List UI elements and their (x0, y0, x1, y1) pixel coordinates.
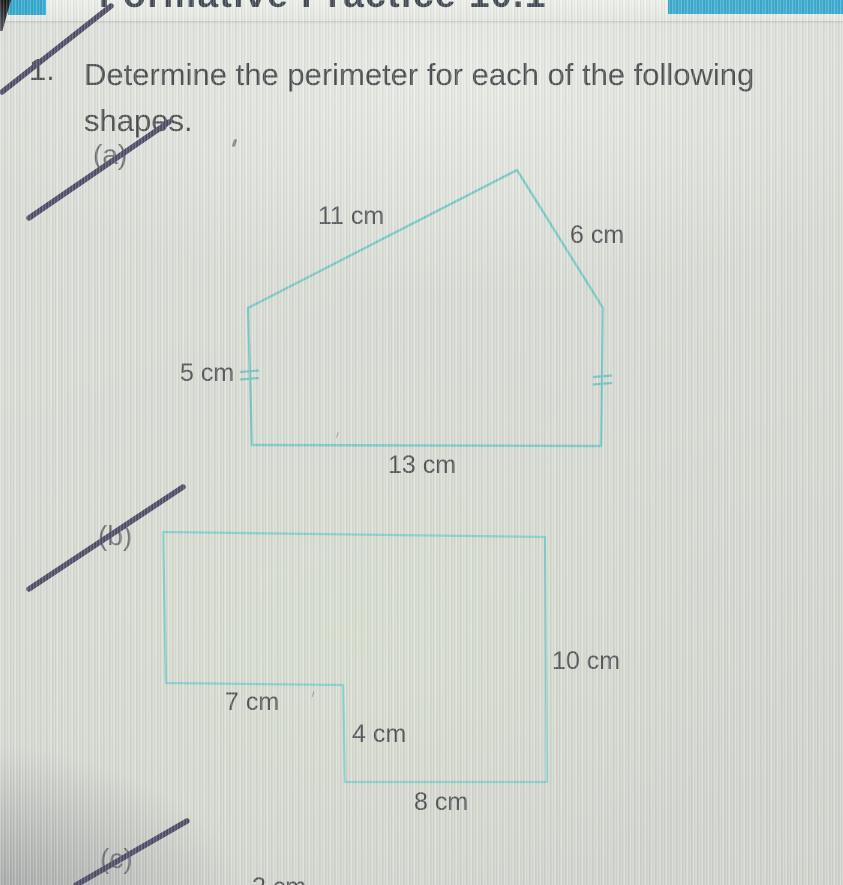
part-b-label: (b) (98, 520, 132, 552)
textbook-page: Formative Practice 10.1 1. Determine the… (0, 0, 843, 885)
part-c-label: (c) (100, 843, 133, 875)
shape-a-label-left: 5 cm (180, 359, 234, 388)
shape-a-label-bottom: 13 cm (388, 451, 456, 480)
shape-a-right-equal-tick (593, 376, 612, 385)
question-line1: Determine the perimeter for each of the … (84, 57, 754, 92)
question-line2: shapes. (84, 103, 193, 138)
header-accent-square (8, 0, 46, 15)
shape-a-pentagon (248, 170, 603, 446)
part-a-label: (a) (93, 139, 127, 171)
shape-b-label-step-vertical: 4 cm (352, 720, 406, 749)
header-cropped-title: Formative Practice 10.1 (99, 0, 659, 16)
part-c-partial-dimension-label: 2 cm (252, 873, 306, 885)
shape-a-label-top: 11 cm (318, 202, 384, 231)
question-text: Determine the perimeter for each of the … (84, 52, 843, 144)
shape-b-label-bottom: 8 cm (414, 788, 468, 817)
shape-b-label-right: 10 cm (552, 647, 620, 676)
question-number: 1. (29, 52, 55, 88)
header-accent-bar (668, 0, 843, 14)
shape-a-label-right: 6 cm (570, 221, 624, 250)
shape-a-left-equal-tick (240, 371, 259, 380)
shape-b-label-step-horizontal: 7 cm (225, 688, 279, 717)
page-header-banner: Formative Practice 10.1 (0, 0, 843, 21)
